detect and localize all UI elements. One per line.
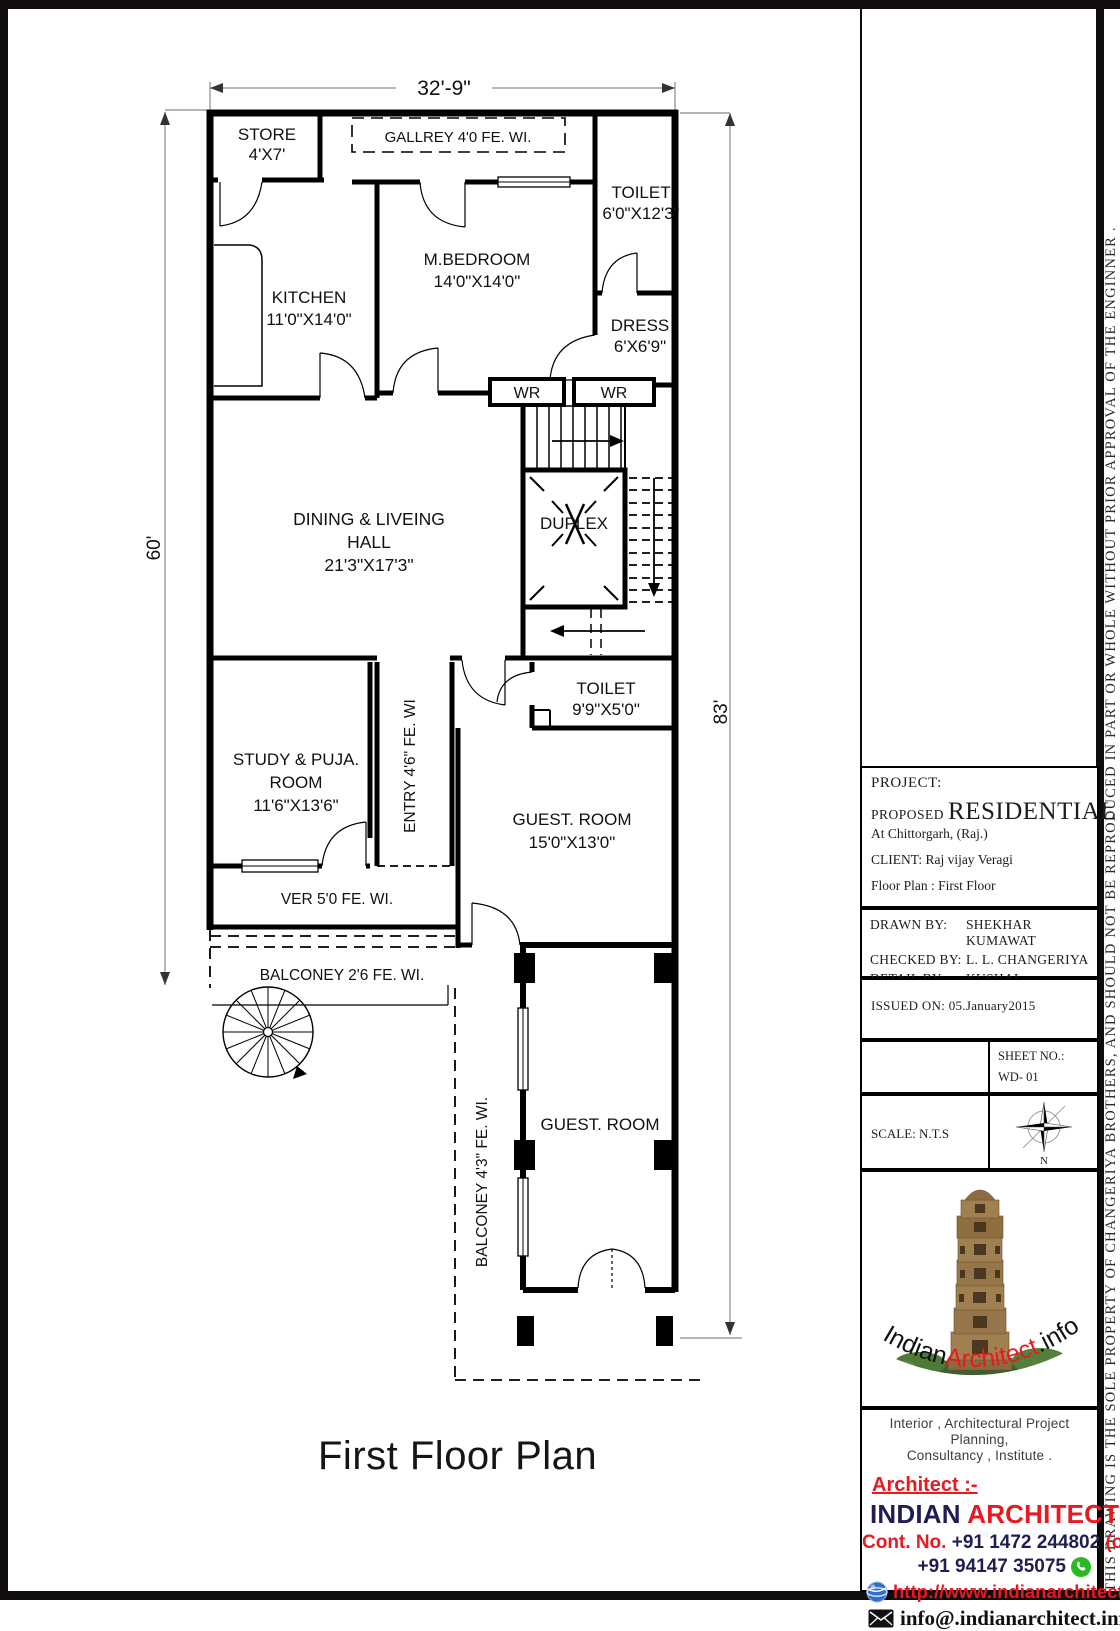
- label-study-size: 11'6"X13'6": [253, 796, 338, 815]
- firm-indian: INDIAN: [870, 1499, 961, 1529]
- label-wr1: WR: [514, 385, 541, 402]
- label-toilet2-size: 9'9"X5'0": [572, 700, 640, 719]
- project-label: PROJECT:: [871, 775, 1097, 792]
- checked-by-label: CHECKED BY:: [870, 952, 966, 968]
- label-kitchen-size: 11'0"X14'0": [266, 310, 351, 329]
- phone-office-line: Cont. No. +91 1472 244802 (o): [862, 1532, 1091, 1554]
- label-entry: ENTRY 4'6" FE. WI: [402, 699, 419, 833]
- label-toilet1-name: TOILET: [611, 183, 670, 202]
- logo-tower-graphic: IndianArchitect.info: [862, 1172, 1097, 1406]
- label-hall-1: DINING & LIVEING: [293, 509, 445, 529]
- label-hall-size: 21'3"X17'3": [324, 555, 413, 575]
- label-dress-name: DRESS: [611, 316, 670, 335]
- label-store-name: STORE: [238, 125, 296, 144]
- dim-right-label: 83': [711, 700, 732, 725]
- scale-value: SCALE: N.T.S: [871, 1126, 949, 1142]
- services-line1: Interior , Architectural Project Plannin…: [862, 1416, 1097, 1448]
- label-gallery: GALLREY 4'0 FE. WI.: [385, 129, 532, 146]
- scale-divider: [988, 1096, 990, 1168]
- floor-plan-name: Floor Plan : First Floor: [871, 878, 1097, 894]
- email-address[interactable]: info@.indianarchitect.info/: [900, 1606, 1120, 1631]
- phone-mobile-line: +91 94147 35075: [862, 1556, 1091, 1578]
- credits-box: DRAWN BY:SHEKHAR KUMAWAT CHECKED BY:L. L…: [860, 908, 1099, 978]
- label-wr2: WR: [601, 385, 628, 402]
- label-kitchen-name: KITCHEN: [272, 288, 347, 307]
- spiral-staircase: [223, 987, 313, 1079]
- envelope-icon: [868, 1609, 894, 1628]
- phone-office-suffix: (o): [1105, 1532, 1120, 1553]
- drawing-title: First Floor Plan: [318, 1434, 597, 1479]
- project-type: RESIDENTIAL: [948, 798, 1116, 825]
- label-guest1-name: GUEST. ROOM: [512, 810, 631, 829]
- logo-box: IndianArchitect.info: [860, 1170, 1099, 1408]
- client: CLIENT: Raj vijay Veragi: [871, 852, 1097, 868]
- drawn-by-value: SHEKHAR KUMAWAT: [966, 917, 1097, 949]
- compass-rose: N: [994, 1096, 1094, 1168]
- dim-left-label: 60': [144, 536, 165, 561]
- label-toilet2-name: TOILET: [576, 679, 635, 698]
- north-label: N: [1040, 1155, 1048, 1167]
- sheet-no-label: SHEET NO.:: [998, 1049, 1064, 1064]
- label-study-1: STUDY & PUJA.: [233, 750, 359, 769]
- label-toilet1-size: 6'0"X12'3": [602, 204, 679, 223]
- label-guest1-size: 15'0"X13'0": [529, 833, 616, 852]
- dimension-arrows: [160, 83, 735, 1335]
- label-bedroom-name: M.BEDROOM: [424, 250, 531, 269]
- firm-architect: ARCHITECT: [967, 1499, 1119, 1529]
- label-hall-2: HALL: [347, 532, 391, 552]
- issued-box: ISSUED ON: 05.January2015: [860, 978, 1099, 1040]
- label-ver: VER 5'0 FE. WI.: [281, 891, 393, 908]
- label-balcony1: BALCONEY 2'6 FE. WI.: [260, 967, 425, 984]
- firm-name: INDIAN ARCHITECT .INFO: [870, 1499, 1097, 1530]
- label-study-2: ROOM: [270, 773, 323, 792]
- phone-office: +91 1472 244802: [952, 1532, 1100, 1553]
- label-store-size: 4'X7': [249, 145, 286, 164]
- sheet-box: SHEET NO.: WD- 01: [860, 1040, 1099, 1094]
- drawn-by-label: DRAWN BY:: [870, 917, 966, 949]
- scale-box: SCALE: N.T.S N: [860, 1094, 1099, 1170]
- balcony-outlines: [210, 930, 700, 1380]
- whatsapp-icon: [1071, 1557, 1091, 1577]
- label-bedroom-size: 14'0"X14'0": [434, 272, 521, 291]
- sheet-divider: [988, 1042, 990, 1092]
- proposed-label: PROPOSED: [871, 807, 944, 822]
- services-line2: Consultancy , Institute .: [862, 1448, 1097, 1464]
- project-box: PROJECT: PROPOSED RESIDENTIAL At Chittor…: [860, 766, 1099, 908]
- label-balcony2: BALCONEY 4'3" FE. WI.: [474, 1097, 491, 1267]
- phone-mobile: +91 94147 35075: [918, 1556, 1066, 1578]
- floor-plan: 32'-9" 60' 83' STORE 4'X7' GALLREY 4'0 F…: [0, 0, 860, 1600]
- sheet-no-value: WD- 01: [998, 1070, 1039, 1085]
- email-line[interactable]: info@.indianarchitect.info/: [868, 1606, 1093, 1631]
- dim-top-label: 32'-9": [417, 77, 471, 100]
- project-location: At Chittorgarh, (Raj.): [871, 826, 1097, 842]
- issued-on: ISSUED ON: 05.January2015: [871, 998, 1097, 1014]
- kitchen-counter: [214, 245, 262, 386]
- contact-box: Interior , Architectural Project Plannin…: [860, 1408, 1099, 1592]
- terrace-edge: [212, 985, 448, 1005]
- checked-by-value: L. L. CHANGERIYA: [966, 952, 1089, 968]
- architect-label: Architect :-: [872, 1474, 1097, 1497]
- label-dress-size: 6'X6'9": [614, 337, 666, 356]
- label-guest2-name: GUEST. ROOM: [540, 1115, 659, 1134]
- label-duplex: DUPLEX: [540, 514, 608, 533]
- contact-label: Cont. No.: [862, 1532, 946, 1553]
